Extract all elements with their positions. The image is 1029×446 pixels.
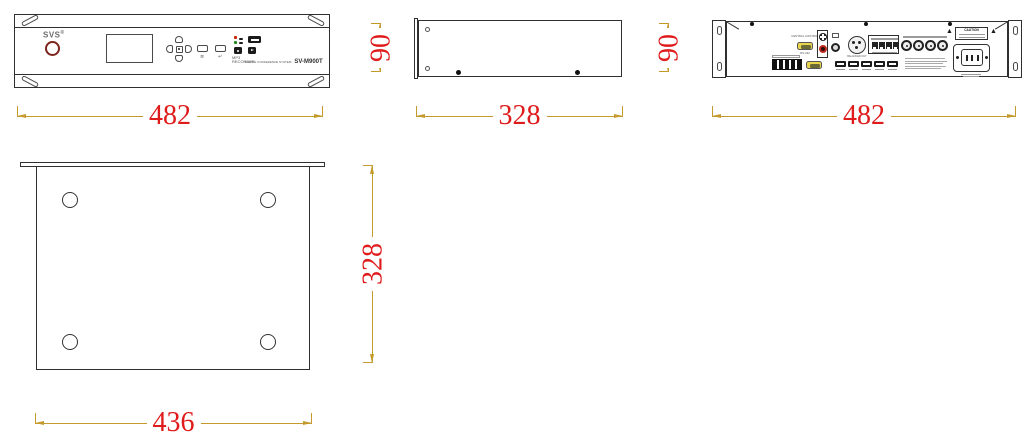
output-port[interactable]	[874, 61, 885, 67]
record-button[interactable]	[234, 47, 242, 54]
dim-value: 482	[143, 101, 197, 130]
rca-jack-red[interactable]	[819, 45, 827, 53]
dim-arrow	[712, 114, 721, 118]
rack-slot	[1013, 26, 1018, 35]
record-button-dot	[237, 50, 239, 52]
panel-screw	[750, 22, 754, 26]
port-label	[836, 69, 845, 71]
dim-arrow	[416, 114, 425, 118]
warning-triangle-icon: ▲	[946, 28, 953, 35]
play-button[interactable]	[248, 47, 256, 54]
screw-hole	[425, 27, 430, 32]
dim-bottom-depth: 328	[372, 165, 373, 363]
brand-reg-mark: ®	[61, 30, 65, 36]
dpad[interactable]	[165, 35, 193, 63]
power-rating-line	[961, 74, 981, 75]
output-port[interactable]	[848, 61, 859, 67]
dim-side-height: 90	[380, 23, 381, 72]
model-line: DIGITAL CONFERENCE SYSTEM SV-M900T	[245, 59, 323, 65]
usb-port[interactable]	[248, 36, 261, 43]
rack-ear	[1008, 20, 1022, 78]
dim-value: 328	[493, 101, 547, 130]
dim-arrow	[370, 165, 374, 174]
rack-slot	[21, 75, 39, 88]
warning-triangle-icon: ▲	[990, 28, 997, 35]
brand-logo: SVS®	[43, 30, 65, 40]
fine-print-line	[905, 66, 946, 67]
power-pin-slot	[971, 55, 973, 61]
rack-slot	[1013, 62, 1018, 71]
dim-side-depth: 328	[416, 116, 623, 117]
port-label	[849, 69, 858, 71]
din-connector[interactable]	[901, 40, 912, 51]
panel-screw	[864, 22, 868, 26]
port-label	[888, 69, 897, 71]
xlr-pin	[852, 41, 855, 44]
foot-screw	[456, 70, 461, 75]
rca-panel	[817, 30, 828, 58]
rca-cross-h	[820, 36, 826, 38]
dim-value: 90	[654, 28, 683, 68]
dim-arrow	[17, 114, 26, 118]
rack-slot	[307, 14, 325, 27]
dim-bottom-width: 436	[35, 423, 312, 424]
model-label: SV-M900T	[294, 59, 322, 65]
vga-pins	[810, 64, 820, 68]
rj45-group-label	[871, 38, 898, 40]
din-connector[interactable]	[913, 40, 924, 51]
power-button[interactable]	[45, 41, 60, 56]
record-led	[234, 36, 237, 39]
rack-slot	[307, 75, 325, 88]
led-mark	[239, 42, 243, 44]
menu-button[interactable]	[197, 45, 208, 52]
dim-rear-width: 482	[712, 116, 1016, 117]
caution-fine-line	[959, 37, 985, 38]
dim-value: 90	[366, 28, 395, 68]
inlet-screw	[985, 56, 988, 59]
rj45-port[interactable]	[886, 42, 892, 49]
port-label	[862, 69, 871, 71]
foot	[62, 334, 78, 350]
small-connector	[832, 33, 839, 38]
round-connector[interactable]	[831, 43, 840, 52]
side-body	[418, 20, 622, 77]
xlr-connector[interactable]	[848, 36, 866, 54]
fine-print-line	[905, 68, 941, 69]
fine-print-line	[905, 61, 947, 62]
xlr-pin	[855, 46, 858, 49]
dim-arrow	[614, 114, 623, 118]
rj45-group	[868, 35, 899, 54]
power-pin-slot	[966, 55, 968, 61]
dpad-down-button[interactable]	[175, 55, 183, 62]
dim-front-width: 482	[17, 116, 323, 117]
port-label	[875, 69, 884, 71]
fine-print-line	[905, 58, 945, 59]
brand-text: SVS	[43, 31, 61, 40]
rj45-numbers	[872, 52, 897, 53]
power-inlet[interactable]	[953, 44, 990, 72]
lcd-display	[106, 34, 153, 63]
dim-value: 328	[358, 237, 387, 291]
terminal-block[interactable]	[772, 59, 802, 70]
system-label: DIGITAL CONFERENCE SYSTEM	[245, 61, 291, 64]
foot-screw	[575, 70, 580, 75]
rs232-db9-connector[interactable]	[797, 42, 813, 50]
balanced-out-label: BALANCED OUT	[843, 56, 871, 59]
rack-slot	[21, 14, 39, 27]
technical-drawing: SVS® ≡ ↵ MP3 RECORDER	[0, 0, 1029, 446]
output-port[interactable]	[887, 61, 898, 67]
foot	[62, 192, 78, 208]
output-port[interactable]	[835, 61, 846, 67]
vga-connector[interactable]	[806, 61, 822, 69]
rj45-port[interactable]	[872, 42, 878, 49]
dim-arrow	[35, 421, 44, 425]
caution-label: CAUTION	[955, 27, 988, 40]
front-bottom-strip-line	[15, 74, 329, 75]
dim-arrow	[370, 354, 374, 363]
caution-fine-line	[959, 34, 985, 35]
dpad-up-button[interactable]	[175, 36, 183, 43]
panel-screw	[948, 22, 952, 26]
dpad-right-button[interactable]	[185, 45, 192, 53]
rj45-port[interactable]	[879, 42, 885, 49]
screw-hole	[425, 66, 430, 71]
back-icon: ↵	[218, 55, 222, 60]
status-led	[234, 41, 237, 44]
bottom-view	[20, 162, 325, 370]
power-rating-line	[963, 76, 979, 77]
power-socket	[961, 49, 983, 66]
output-port[interactable]	[861, 61, 872, 67]
dim-rear-height: 90	[668, 23, 669, 72]
fine-print-line	[905, 63, 943, 64]
terminal-label	[772, 55, 800, 58]
rca-jack-black[interactable]	[819, 33, 827, 41]
rack-ear	[712, 20, 726, 78]
rack-slot	[717, 26, 722, 35]
side-view	[414, 18, 622, 79]
dim-value: 482	[837, 101, 891, 130]
foot	[260, 192, 276, 208]
din-connector[interactable]	[937, 40, 948, 51]
front-top-strip-line	[15, 27, 329, 28]
rack-slot	[717, 62, 722, 71]
din-connector[interactable]	[925, 40, 936, 51]
play-button-triangle	[251, 49, 254, 51]
fine-print	[905, 58, 948, 71]
led-mark	[239, 38, 243, 40]
dim-arrow	[314, 114, 323, 118]
db9-pins	[801, 45, 811, 49]
dpad-left-button[interactable]	[166, 45, 173, 53]
rj45-port[interactable]	[893, 42, 899, 49]
inlet-screw	[956, 56, 959, 59]
xlr-pin	[858, 41, 861, 44]
front-view: SVS® ≡ ↵ MP3 RECORDER	[14, 14, 330, 88]
rear-view: CENTRAL CONTROL RS-232 BALANCED OUT	[712, 18, 1022, 80]
dim-value: 436	[147, 408, 201, 437]
power-pin-slot	[977, 55, 979, 61]
back-button[interactable]	[215, 45, 226, 52]
dpad-center-dot	[178, 48, 180, 50]
din-group-label	[903, 36, 947, 38]
dim-arrow	[303, 421, 312, 425]
foot	[260, 334, 276, 350]
usb-slot	[251, 39, 259, 41]
menu-icon: ≡	[200, 55, 204, 60]
caution-text: CAUTION	[956, 28, 987, 33]
dim-arrow	[1007, 114, 1016, 118]
central-control-label: CENTRAL CONTROL	[791, 35, 819, 38]
